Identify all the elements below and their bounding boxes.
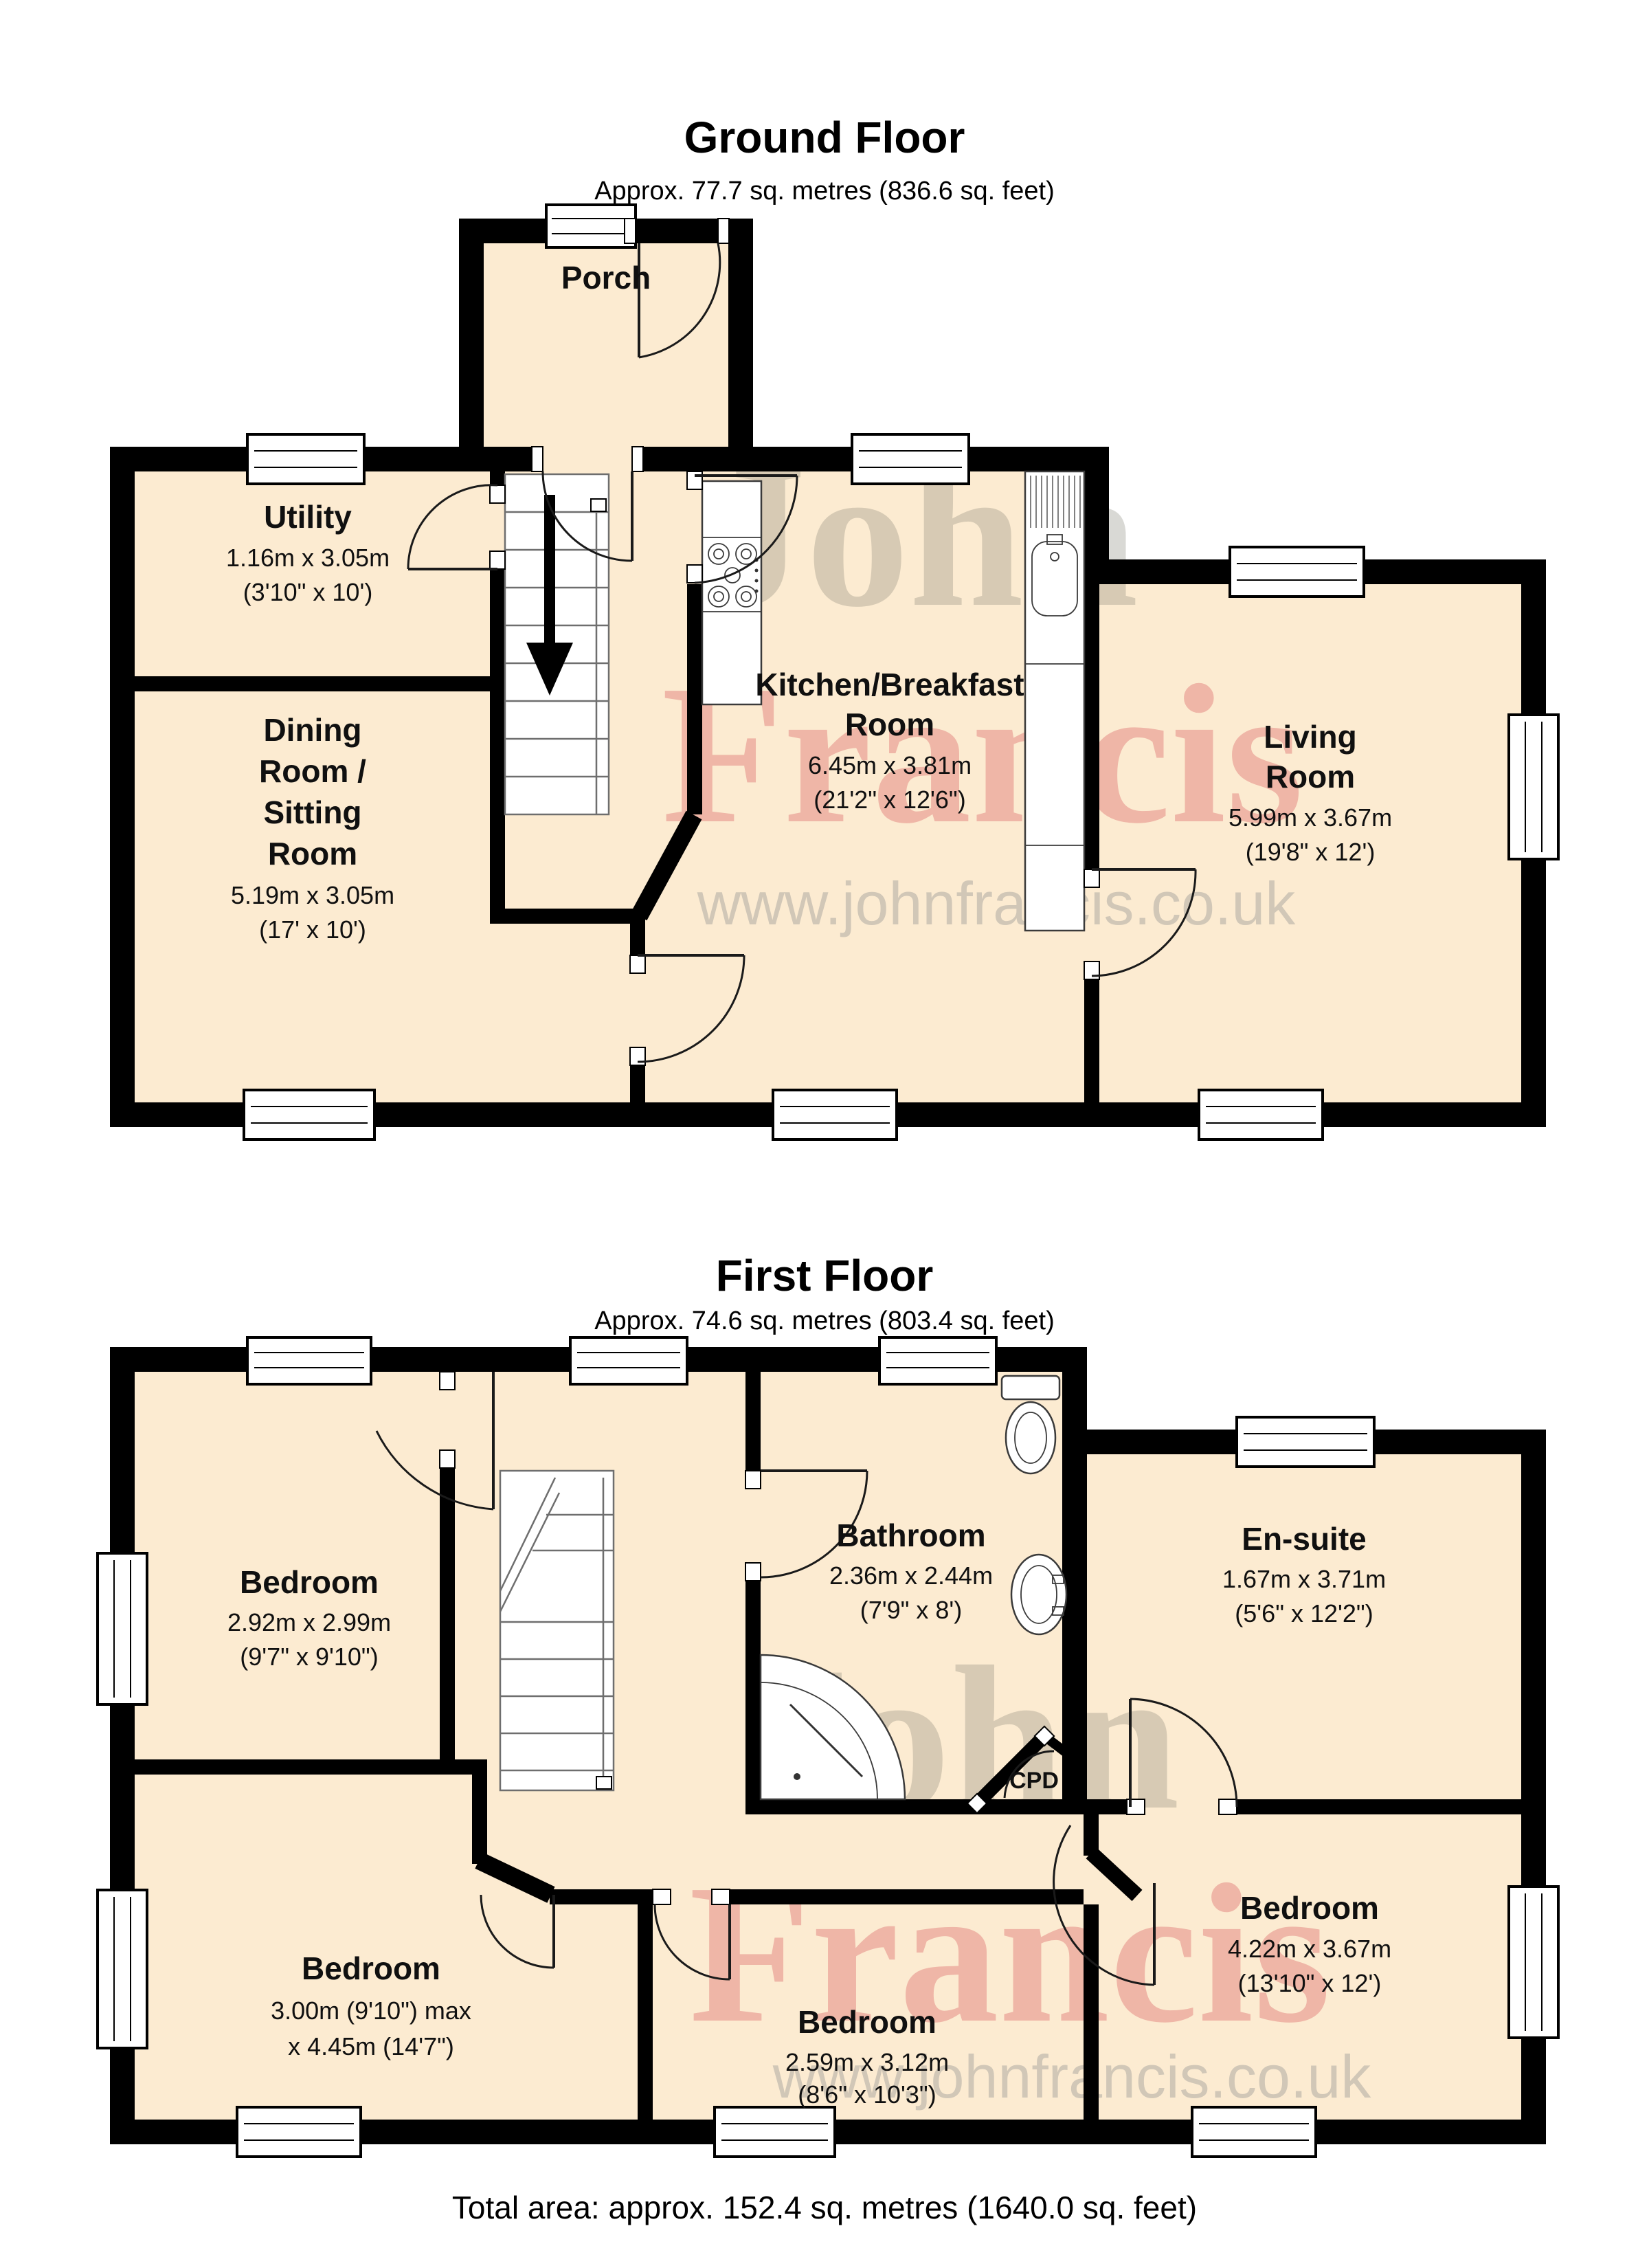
utility-dims-m: 1.16m x 3.05m (226, 544, 390, 572)
ground-staircase (505, 474, 609, 814)
bedroomBL-dims-2: x 4.45m (14'7") (288, 2032, 454, 2060)
dining-label-4: Room (268, 836, 357, 871)
window-bedroomBR-bottom (1192, 2107, 1316, 2157)
first-floor-title: First Floor (716, 1251, 933, 1300)
total-area-label: Total area: approx. 152.4 sq. metres (16… (452, 2190, 1197, 2225)
floorplan-canvas: Ground Floor Approx. 77.7 sq. metres (83… (0, 0, 1649, 2268)
dining-dims-ft: (17' x 10') (259, 915, 366, 944)
ground-floor-title: Ground Floor (684, 113, 965, 162)
utility-dims-ft: (3'10" x 10') (243, 578, 373, 606)
bedroomTL-label: Bedroom (240, 1564, 379, 1600)
dining-label-2: Room / (259, 753, 366, 789)
first-floor-plan: First Floor Approx. 74.6 sq. metres (803… (98, 1251, 1558, 2157)
basin-icon (1011, 1555, 1066, 1634)
window-bathroom-top (879, 1337, 996, 1384)
cpd-label: CPD (1009, 1768, 1059, 1794)
window-dining-bottom (244, 1090, 374, 1139)
window-bedroomBR-right (1509, 1887, 1558, 2038)
window-bedroomBL-left (98, 1890, 147, 2048)
utility-label: Utility (264, 499, 352, 535)
dining-label-3: Sitting (263, 794, 361, 830)
window-kitchen-bottom (773, 1090, 897, 1139)
kitchen-counter-right (1025, 471, 1084, 931)
ensuite-label: En-suite (1242, 1521, 1366, 1557)
porch-label: Porch (561, 260, 651, 296)
ensuite-dims-ft: (5'6" x 12'2") (1235, 1599, 1373, 1627)
kitchen-dims-ft: (21'2" x 12'6") (814, 786, 965, 814)
window-kitchen-top (852, 434, 969, 484)
first-staircase (500, 1471, 614, 1790)
window-utility-top (247, 434, 364, 484)
kitchen-dims-m: 6.45m x 3.81m (808, 751, 972, 779)
first-floor-subtitle: Approx. 74.6 sq. metres (803.4 sq. feet) (594, 1307, 1055, 1335)
bedroomBL-dims-1: 3.00m (9'10") max (271, 1997, 471, 2025)
living-label-1: Living (1264, 719, 1356, 755)
window-bedroomBL-bottom (237, 2107, 361, 2157)
window-living-bottom (1199, 1090, 1323, 1139)
bedroomBL-label: Bedroom (302, 1950, 440, 1986)
bathroom-dims-ft: (7'9" x 8') (860, 1596, 963, 1624)
window-ensuite-top (1237, 1417, 1374, 1467)
ensuite-dims-m: 1.67m x 3.71m (1222, 1565, 1386, 1593)
dining-dims-m: 5.19m x 3.05m (231, 881, 394, 909)
window-bedroomTL-top (247, 1337, 371, 1384)
kitchen-label-1: Kitchen/Breakfast (755, 667, 1024, 702)
bedroomBM-dims-ft: (8'6" x 10'3") (798, 2080, 936, 2109)
window-porch-top (546, 205, 636, 247)
window-bedroomTL-left (98, 1553, 147, 1704)
living-label-2: Room (1266, 759, 1355, 794)
bedroomBR-dims-m: 4.22m x 3.67m (1228, 1935, 1391, 1963)
bedroomBR-dims-ft: (13'10" x 12') (1238, 1969, 1382, 1997)
dining-label-1: Dining (263, 712, 361, 748)
ground-floor-subtitle: Approx. 77.7 sq. metres (836.6 sq. feet) (594, 177, 1055, 205)
watermark-url: www.johnfrancis.co.uk (697, 869, 1297, 937)
window-bedroomBM-bottom (715, 2107, 835, 2157)
living-dims-m: 5.99m x 3.67m (1229, 803, 1392, 832)
bathroom-dims-m: 2.36m x 2.44m (829, 1561, 993, 1590)
window-living-right (1509, 715, 1558, 859)
bedroomBM-label: Bedroom (798, 2004, 936, 2040)
window-landing-top (570, 1337, 687, 1384)
toilet-icon (1002, 1376, 1059, 1474)
bedroomBM-dims-m: 2.59m x 3.12m (785, 2048, 949, 2076)
bedroomTL-dims-m: 2.92m x 2.99m (227, 1608, 391, 1636)
bedroomBR-label: Bedroom (1240, 1890, 1379, 1926)
window-living-top (1230, 547, 1364, 597)
ground-floor-plan: Ground Floor Approx. 77.7 sq. metres (83… (110, 113, 1558, 1139)
bathroom-label: Bathroom (836, 1517, 985, 1553)
kitchen-counter-left (702, 481, 761, 704)
living-dims-ft: (19'8" x 12') (1246, 838, 1376, 866)
bedroomTL-dims-ft: (9'7" x 9'10") (240, 1643, 378, 1671)
kitchen-label-2: Room (845, 707, 934, 742)
